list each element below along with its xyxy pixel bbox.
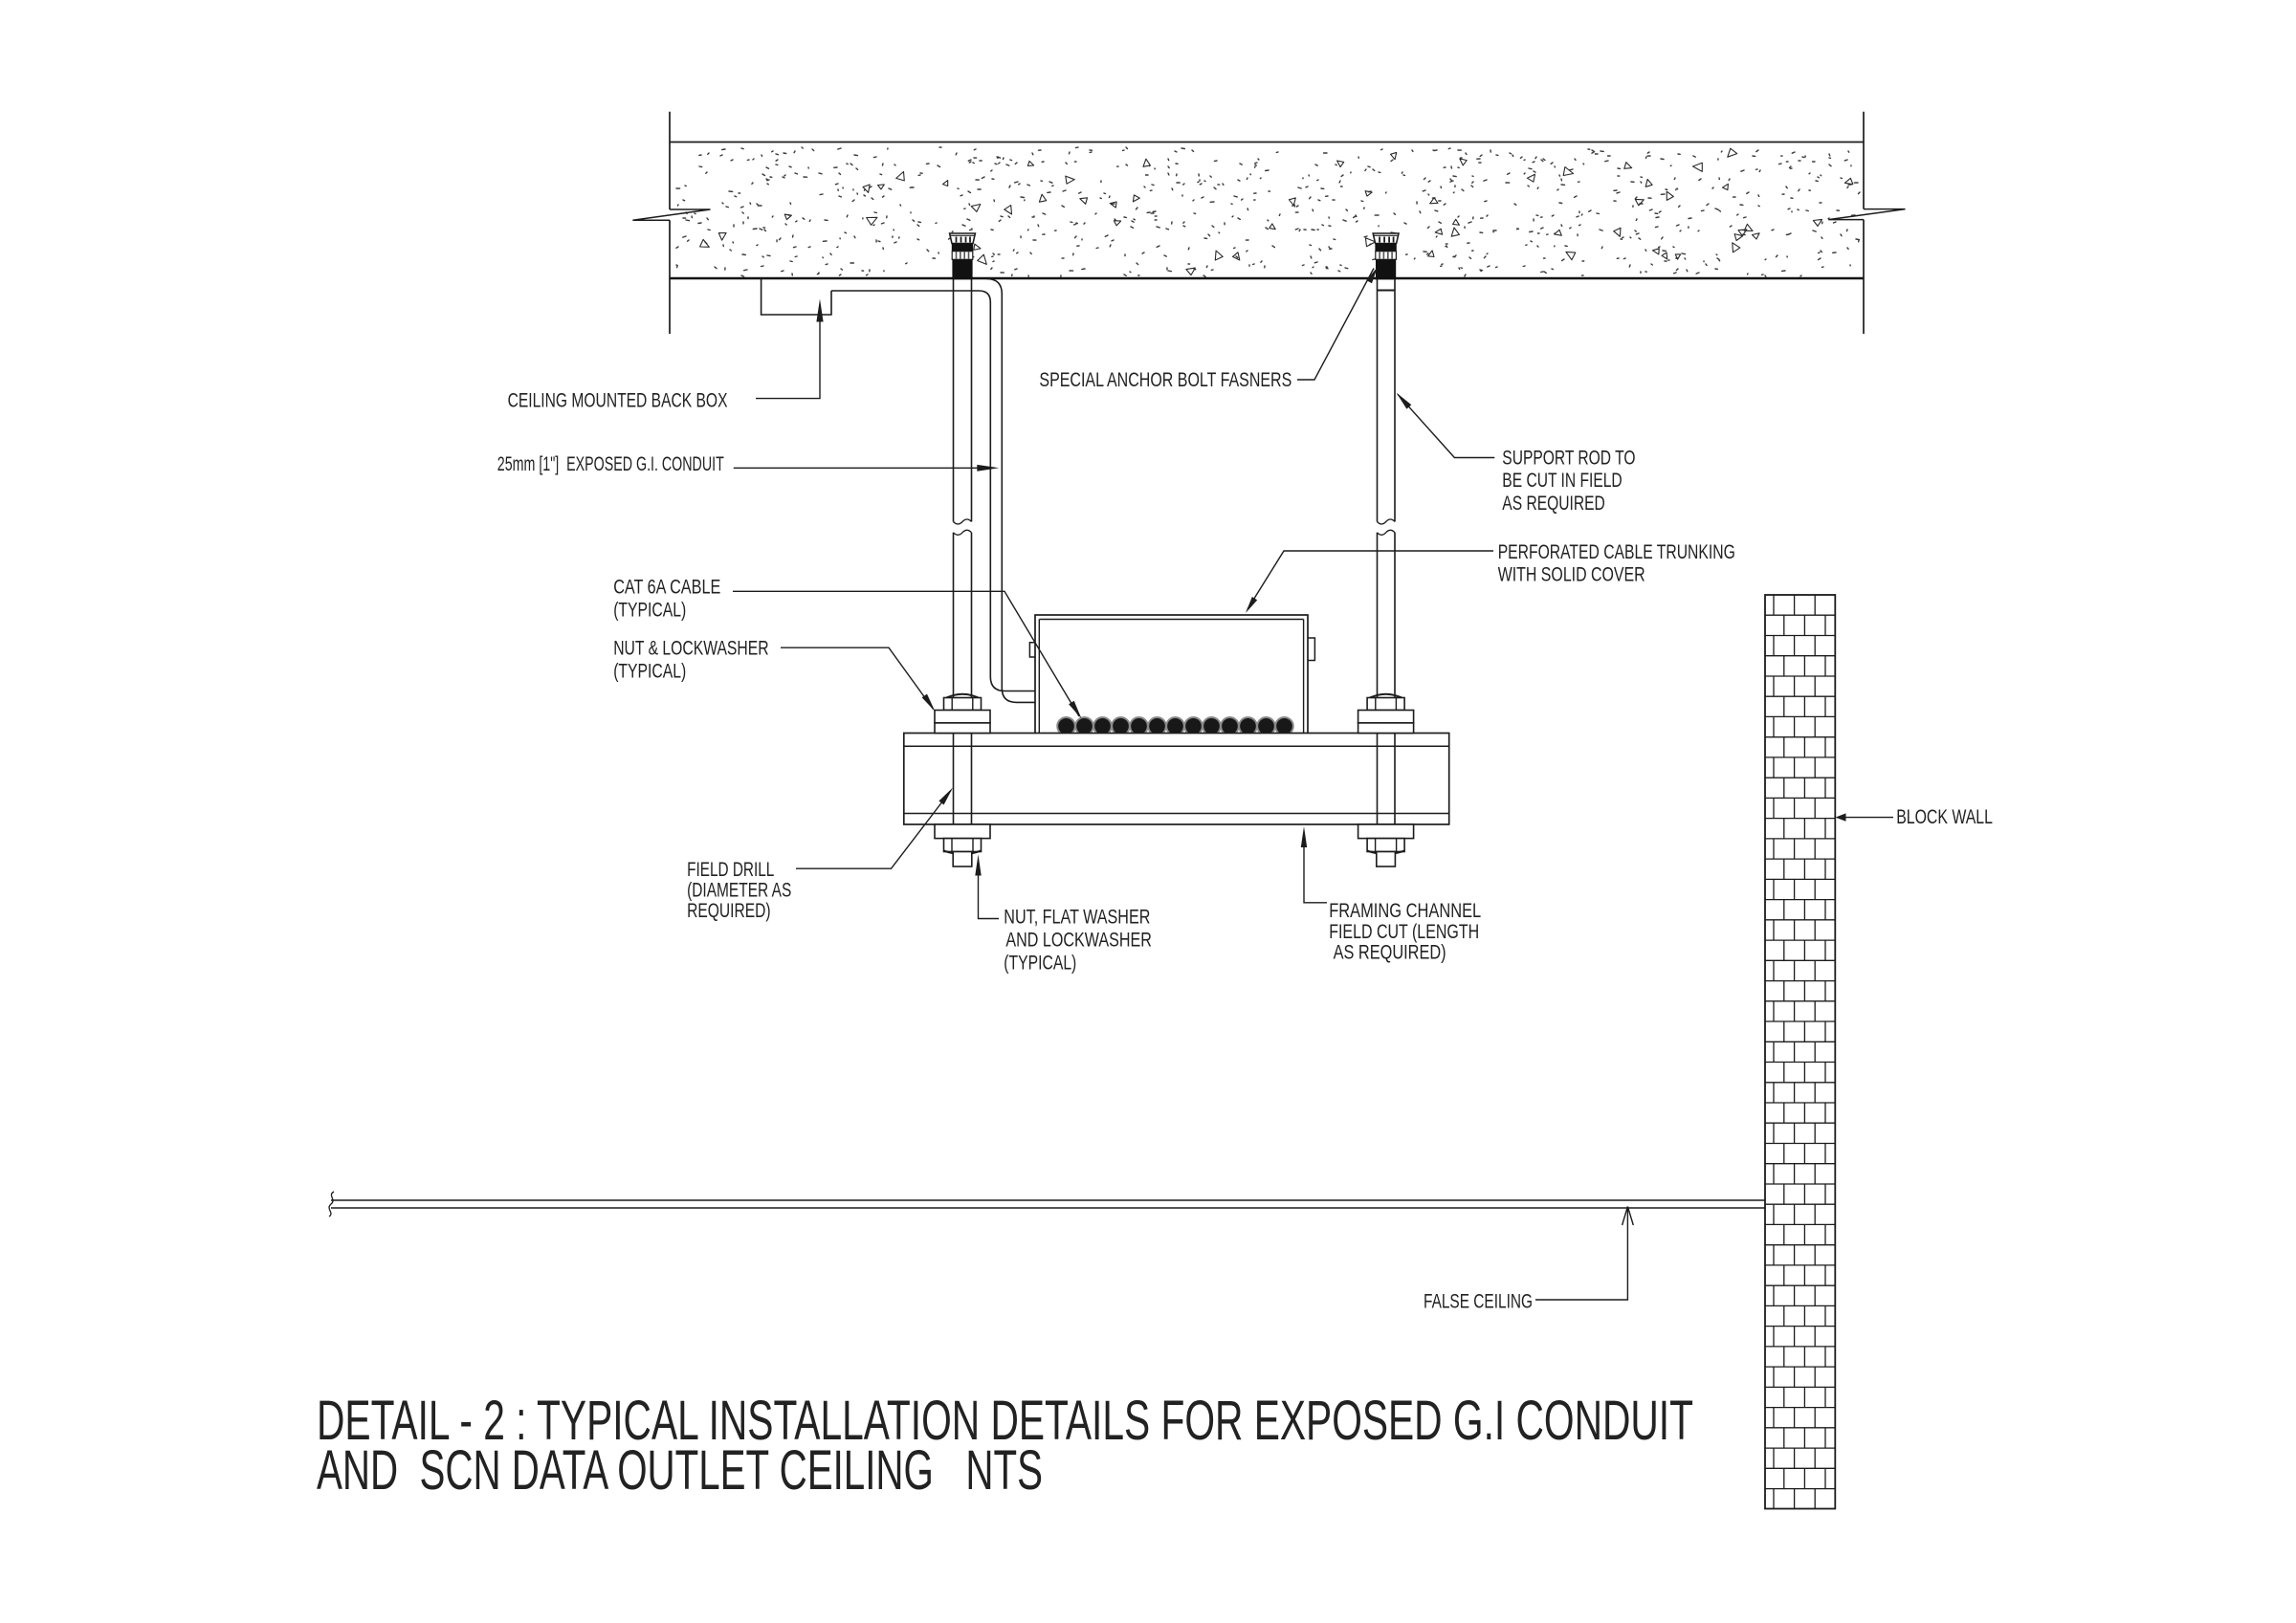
- svg-text:SPECIAL ANCHOR BOLT FASNERS: SPECIAL ANCHOR BOLT FASNERS: [1039, 368, 1291, 391]
- svg-text:FRAMING CHANNEL: FRAMING CHANNEL: [1329, 899, 1481, 922]
- svg-text:(TYPICAL): (TYPICAL): [613, 660, 686, 683]
- svg-text:SUPPORT ROD TO: SUPPORT ROD TO: [1502, 446, 1635, 469]
- svg-text:PERFORATED CABLE TRUNKING: PERFORATED CABLE TRUNKING: [1498, 540, 1735, 563]
- svg-text:AS REQUIRED): AS REQUIRED): [1334, 940, 1446, 963]
- svg-text:NUT & LOCKWASHER: NUT & LOCKWASHER: [613, 637, 768, 660]
- svg-text:WITH SOLID COVER: WITH SOLID COVER: [1498, 563, 1645, 586]
- svg-text:(TYPICAL): (TYPICAL): [1004, 951, 1076, 974]
- svg-text:BE CUT IN FIELD: BE CUT IN FIELD: [1502, 469, 1622, 492]
- svg-text:REQUIRED): REQUIRED): [687, 899, 771, 922]
- svg-text:(DIAMETER AS: (DIAMETER AS: [687, 878, 791, 901]
- svg-text:AND SCN DATA OUTLET CEILING: AND SCN DATA OUTLET CEILING NTS: [317, 1439, 1043, 1502]
- svg-text:FIELD DRILL: FIELD DRILL: [687, 858, 774, 881]
- svg-text:NUT, FLAT WASHER: NUT, FLAT WASHER: [1004, 905, 1150, 928]
- svg-text:(TYPICAL): (TYPICAL): [613, 599, 686, 622]
- svg-text:25mm [1"] EXPOSED G.I. CONDUI: 25mm [1"] EXPOSED G.I. CONDUIT: [497, 452, 724, 475]
- svg-text:CEILING MOUNTED BACK BOX: CEILING MOUNTED BACK BOX: [508, 389, 728, 412]
- svg-text:AND LOCKWASHER: AND LOCKWASHER: [1005, 928, 1152, 951]
- svg-text:FALSE CEILING: FALSE CEILING: [1424, 1290, 1533, 1313]
- svg-text:CAT 6A CABLE: CAT 6A CABLE: [613, 576, 720, 599]
- svg-text:BLOCK WALL: BLOCK WALL: [1896, 805, 1993, 828]
- svg-text:AS REQUIRED: AS REQUIRED: [1502, 492, 1605, 515]
